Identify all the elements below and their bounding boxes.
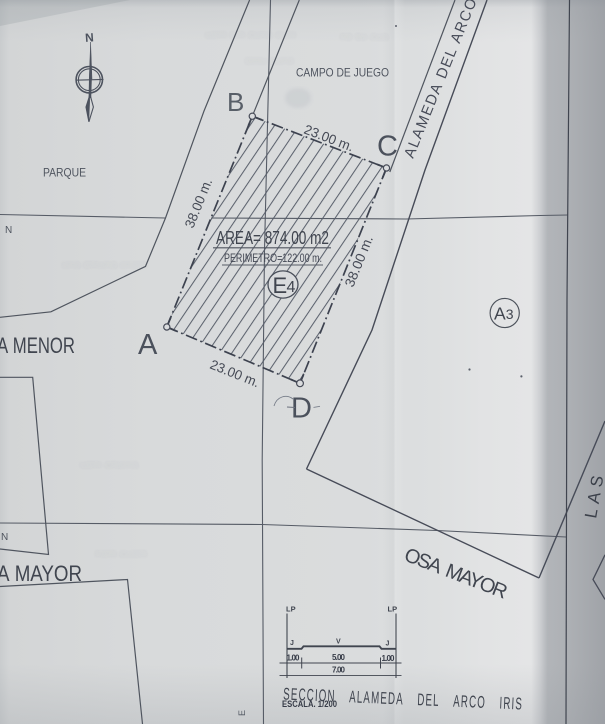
svg-text:PERIMETRO=122.00 m.: PERIMETRO=122.00 m. [224,253,322,265]
svg-text:D: D [291,393,312,425]
svg-text:LP: LP [286,605,296,614]
svg-text:E: E [237,710,247,716]
svg-text:N: N [1,532,8,543]
svg-text:J: J [290,640,294,647]
svg-text:LP: LP [388,605,398,614]
svg-text:E: E [273,273,288,298]
svg-text:A: A [138,329,158,361]
svg-text:PARQUE: PARQUE [43,166,86,180]
svg-text:A MAYOR: A MAYOR [0,561,82,586]
svg-text:nom auom: nom auom [95,548,147,560]
svg-text:C: C [377,131,398,163]
svg-text:1.00: 1.00 [287,654,301,663]
svg-text:7.00: 7.00 [332,665,346,674]
svg-text:A MENOR: A MENOR [0,333,75,358]
svg-text:J: J [386,641,390,648]
svg-text:no su aua: no su aua [340,31,389,43]
svg-text:ESCALA. 1/200: ESCALA. 1/200 [282,699,337,709]
svg-text:1.00: 1.00 [382,654,396,663]
svg-text:AREA= 874.00 m2: AREA= 874.00 m2 [216,227,329,248]
svg-text:N: N [85,30,95,45]
svg-text:V: V [336,639,341,646]
svg-text:N: N [5,225,12,236]
svg-text:B: B [227,87,244,117]
svg-text:uom om auna cum: uom om auna cum [205,29,296,41]
svg-text:A3: A3 [494,304,514,324]
svg-text:5.00: 5.00 [332,653,346,662]
svg-text:una omuna cnom: una omuna cnom [62,259,147,271]
svg-text:uom anuma: uom anuma [80,459,139,471]
svg-text:CAMPO DE JUEGO: CAMPO DE JUEGO [296,66,389,80]
svg-text:4: 4 [287,279,296,296]
